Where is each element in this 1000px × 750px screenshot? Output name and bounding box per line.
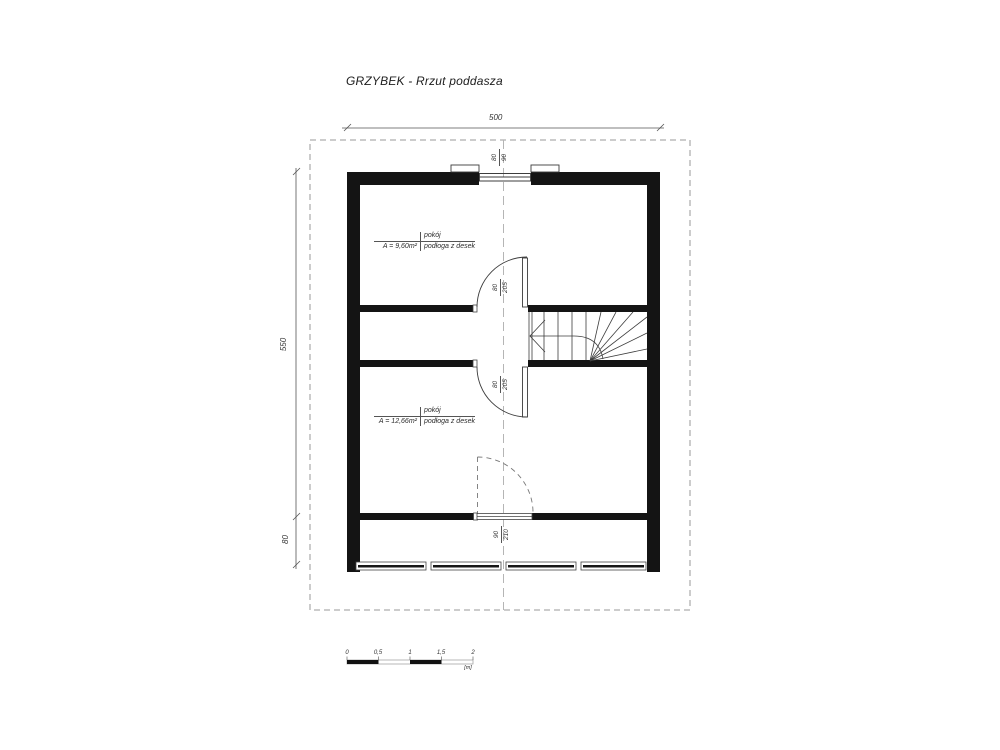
scale-tick-1: 1 — [400, 650, 420, 656]
room-label-2: pokój A = 12,66m² podłoga z desek — [374, 407, 475, 426]
scale-tick-15: 1,5 — [431, 650, 451, 656]
dim-door-dashed: 90 210 — [493, 526, 510, 543]
dim-door-upper-width: 80 — [492, 284, 499, 291]
room-label-1: pokój A = 9,60m² podłoga z desek — [374, 232, 475, 251]
door-dashed — [477, 457, 533, 520]
room-1-spacer — [374, 232, 421, 242]
room-1-floor: podłoga z desek — [421, 242, 475, 251]
dim-separator — [500, 376, 501, 393]
dim-door-upper-height: 205 — [502, 282, 509, 293]
scale-tick-2: 2 — [463, 650, 483, 656]
scale-unit: [m] — [458, 665, 478, 671]
dim-height-bottom: 80 — [281, 535, 290, 544]
room-2-name: pokój — [421, 407, 475, 417]
dim-separator — [500, 279, 501, 296]
dim-separator — [501, 526, 502, 543]
dim-door-dashed-width: 90 — [493, 531, 500, 538]
dim-height-main: 550 — [279, 338, 288, 351]
dim-door-lower-height: 205 — [502, 379, 509, 390]
room-2-spacer — [374, 407, 421, 417]
room-1-area: A = 9,60m² — [374, 242, 421, 251]
dim-width-total: 500 — [489, 113, 502, 122]
dim-top-window: 80 90 — [491, 149, 508, 166]
scale-tick-05: 0,5 — [368, 650, 388, 656]
scale-tick-0: 0 — [337, 650, 357, 656]
dim-separator — [499, 149, 500, 166]
floor-plan-canvas: GRZYBEK - Rrzut poddasza 500 550 80 80 9… — [0, 0, 1000, 750]
dim-top-window-height: 90 — [501, 154, 508, 161]
dim-door-lower: 80 205 — [492, 376, 509, 393]
scale-bar — [347, 657, 473, 665]
stairs — [529, 312, 647, 361]
bottom-window-band — [356, 562, 646, 570]
room-1-name: pokój — [421, 232, 475, 242]
drawing-title: GRZYBEK - Rrzut poddasza — [346, 74, 503, 88]
room-2-area: A = 12,66m² — [374, 417, 421, 426]
dim-door-dashed-height: 210 — [503, 529, 510, 540]
dim-top-window-width: 80 — [491, 154, 498, 161]
dim-door-lower-width: 80 — [492, 381, 499, 388]
dim-door-upper: 80 205 — [492, 279, 509, 296]
room-2-floor: podłoga z desek — [421, 417, 475, 426]
